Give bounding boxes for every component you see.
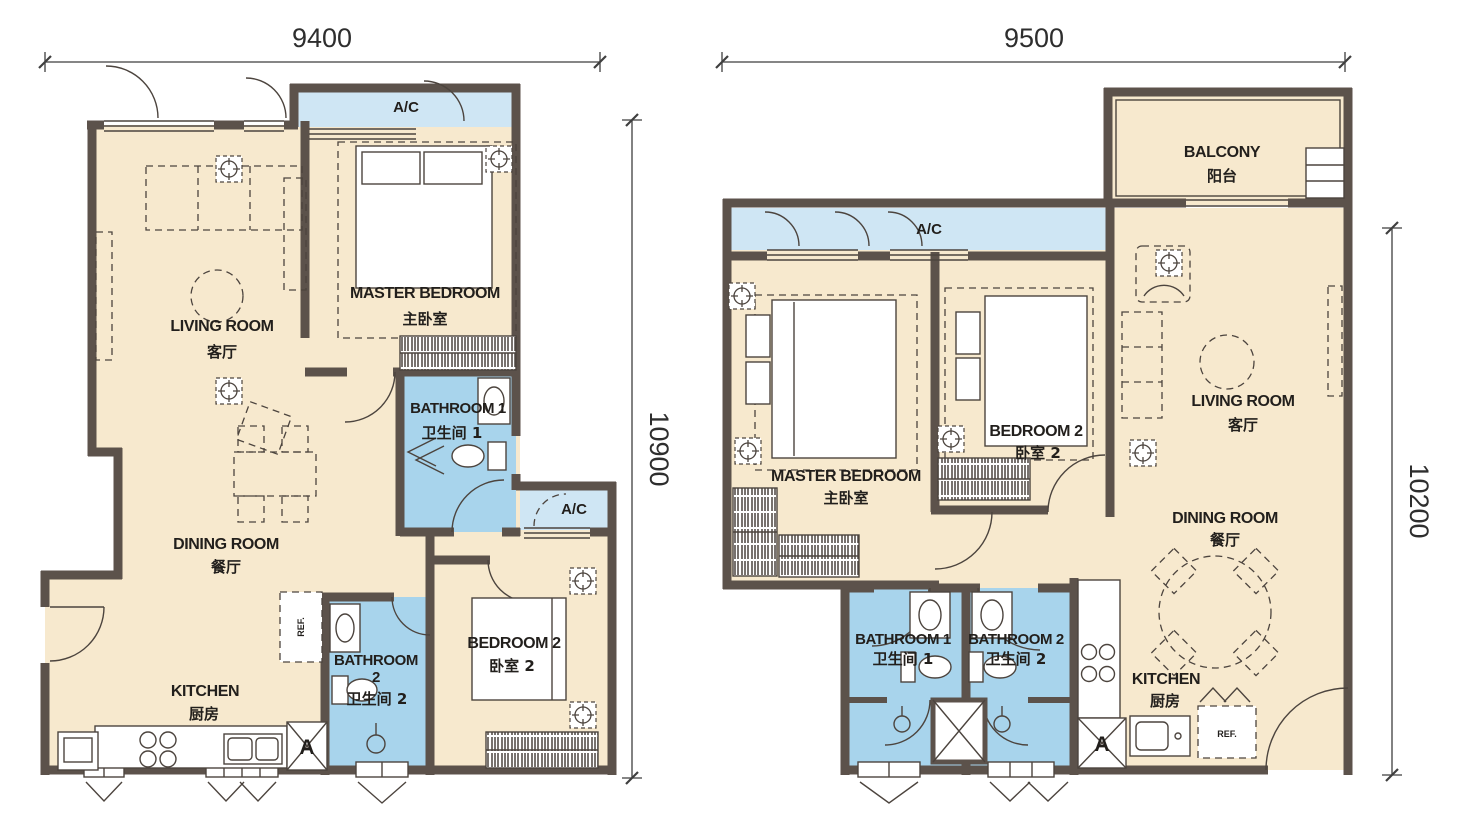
right-floor-plan: BALCONY 阳台 A/C MASTER BEDROOM 主卧室 BEDROO… <box>716 23 1434 803</box>
right-living-room-label-zh: 客厅 <box>1227 416 1258 434</box>
right-bottom-window-bay <box>988 762 1054 777</box>
floor-plan-drawing: A/C LIVING ROOM 客厅 MASTER BEDROOM 主卧室 BA… <box>0 0 1464 827</box>
left-living-room-label-zh: 客厅 <box>206 343 237 361</box>
left-width-dimension-value: 9400 <box>292 23 352 53</box>
right-bathroom1-label: BATHROOM 1 <box>855 631 951 648</box>
pillow-icon <box>956 312 980 354</box>
ceiling-fan-icon <box>216 378 242 404</box>
ceiling-fan-icon <box>735 438 761 464</box>
right-ac-label: A/C <box>916 221 942 238</box>
right-bathroom2-label-zh: 卫生间 2 <box>986 650 1047 668</box>
left-bedroom2-label-zh: 卧室 2 <box>489 657 535 675</box>
left-kitchen-label: KITCHEN <box>171 683 239 700</box>
left-bathroom2-label-2: 2 <box>372 669 380 686</box>
right-height-dimension: 10200 <box>1382 222 1434 781</box>
left-height-dimension-value: 10900 <box>644 411 674 486</box>
left-fridge-label: REF. <box>296 617 306 637</box>
left-bathroom1-label: BATHROOM 1 <box>410 400 506 417</box>
right-bathroom1-label-zh: 卫生间 1 <box>873 650 934 668</box>
right-dining-room-label: DINING ROOM <box>1172 510 1278 527</box>
toilet-tank <box>332 676 348 704</box>
left-bathroom2-label: BATHROOM <box>334 652 418 669</box>
balcony-ac-unit <box>1306 148 1344 198</box>
left-width-dimension: 9400 <box>39 23 606 72</box>
pillow-icon <box>746 362 770 404</box>
ceiling-fan-icon <box>486 146 512 172</box>
left-bathroom1-label-zh: 卫生间 1 <box>422 424 483 442</box>
right-dining-room-label-zh: 餐厅 <box>1210 531 1240 549</box>
left-height-dimension: 10900 <box>622 114 674 784</box>
right-width-dimension: 9500 <box>716 23 1351 72</box>
left-appliance-label: A <box>299 736 314 759</box>
left-ac-top-label: A/C <box>393 99 419 116</box>
right-bedroom2-label-zh: 卧室 2 <box>1015 444 1061 462</box>
ceiling-fan-icon <box>938 426 964 452</box>
sink-icon <box>330 604 360 652</box>
pillow-icon <box>956 358 980 400</box>
ceiling-fan-icon <box>729 283 755 309</box>
left-dining-room-label-zh: 餐厅 <box>211 558 241 576</box>
left-master-bedroom-label: MASTER BEDROOM <box>350 285 500 302</box>
left-bedroom2-label: BEDROOM 2 <box>467 635 561 652</box>
right-kitchen-label: KITCHEN <box>1132 671 1200 688</box>
ceiling-fan-icon <box>570 702 596 728</box>
left-dining-room-label: DINING ROOM <box>173 536 279 553</box>
ceiling-fan-icon <box>1130 440 1156 466</box>
left-bathroom2-label-zh: 卫生间 2 <box>347 690 408 708</box>
left-ac-side-label: A/C <box>561 501 587 518</box>
right-bedroom2-label: BEDROOM 2 <box>989 423 1083 440</box>
bed-icon <box>772 300 896 458</box>
left-kitchen-label-zh: 厨房 <box>189 705 219 723</box>
right-balcony-label-zh: 阳台 <box>1207 167 1237 185</box>
ceiling-fan-icon <box>1156 250 1182 276</box>
pillow-icon <box>746 315 770 357</box>
toilet-icon <box>452 445 484 467</box>
left-floor-plan: A/C LIVING ROOM 客厅 MASTER BEDROOM 主卧室 BA… <box>39 23 674 803</box>
toilet-tank <box>488 442 506 470</box>
right-appliance-label: A <box>1094 733 1109 756</box>
right-fridge-label: REF. <box>1217 729 1237 739</box>
ceiling-fan-icon <box>570 568 596 594</box>
ceiling-fan-icon <box>216 156 242 182</box>
right-living-room-label: LIVING ROOM <box>1191 393 1294 410</box>
right-width-dimension-value: 9500 <box>1004 23 1064 53</box>
right-master-bedroom-label: MASTER BEDROOM <box>771 468 921 485</box>
toilet-tank <box>969 652 983 682</box>
right-bathroom2-label: BATHROOM 2 <box>968 631 1064 648</box>
left-master-bedroom-label-zh: 主卧室 <box>402 310 447 328</box>
right-balcony-label: BALCONY <box>1184 144 1261 161</box>
right-master-bedroom-label-zh: 主卧室 <box>823 489 868 507</box>
floor-plan-canvas: A/C LIVING ROOM 客厅 MASTER BEDROOM 主卧室 BA… <box>0 0 1464 827</box>
right-height-dimension-value: 10200 <box>1404 463 1434 538</box>
left-living-room-label: LIVING ROOM <box>170 318 273 335</box>
right-kitchen-label-zh: 厨房 <box>1150 692 1180 710</box>
